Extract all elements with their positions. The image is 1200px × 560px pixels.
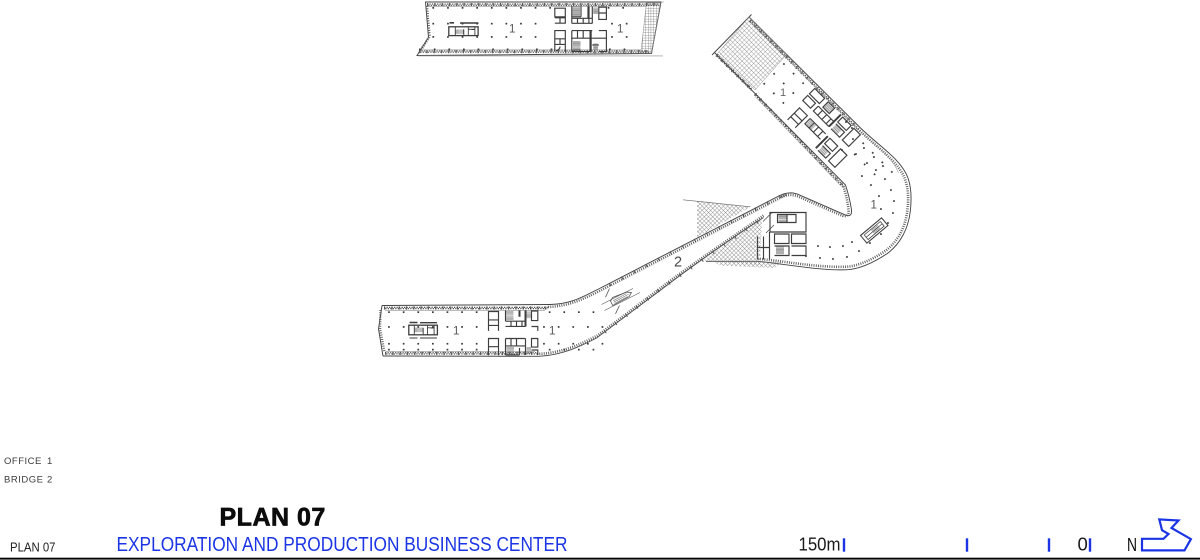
svg-text:PLAN 07: PLAN 07 xyxy=(220,504,326,532)
svg-text:2: 2 xyxy=(674,255,682,271)
svg-text:1: 1 xyxy=(509,24,515,36)
svg-text:0: 0 xyxy=(1078,534,1088,555)
svg-text:1: 1 xyxy=(617,24,623,36)
svg-text:PLAN 07: PLAN 07 xyxy=(10,540,56,555)
svg-text:BRIDGE: BRIDGE xyxy=(4,475,43,486)
svg-text:1: 1 xyxy=(780,87,786,99)
svg-text:150m: 150m xyxy=(799,534,841,555)
svg-text:1: 1 xyxy=(47,456,52,467)
svg-text:N: N xyxy=(1127,535,1137,555)
svg-text:1: 1 xyxy=(549,326,555,338)
svg-text:OFFICE: OFFICE xyxy=(4,456,42,467)
svg-text:1: 1 xyxy=(871,200,877,212)
svg-text:EXPLORATION AND PRODUCTION BUS: EXPLORATION AND PRODUCTION BUSINESS CENT… xyxy=(117,534,568,556)
svg-text:2: 2 xyxy=(47,475,52,486)
svg-text:1: 1 xyxy=(453,326,459,338)
